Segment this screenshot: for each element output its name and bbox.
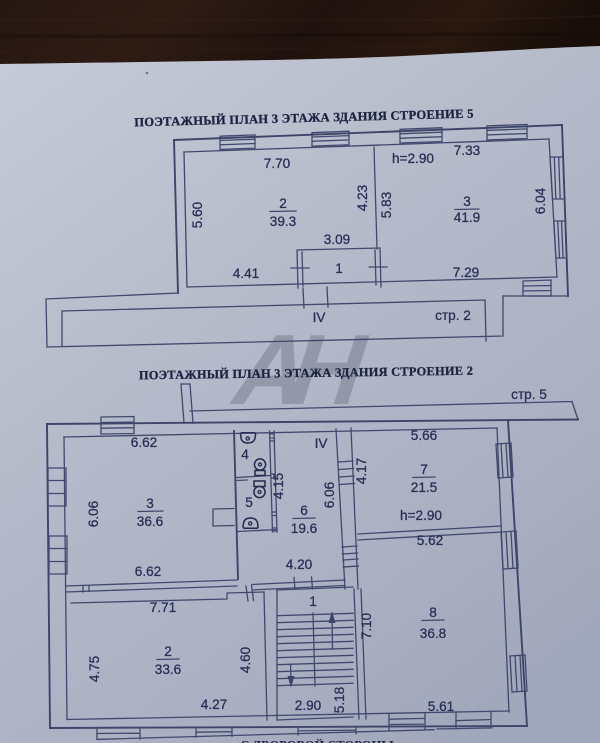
svg-text:1: 1 — [335, 261, 343, 276]
svg-text:2: 2 — [279, 196, 287, 211]
svg-text:7.29: 7.29 — [453, 265, 479, 280]
svg-text:IV: IV — [315, 436, 328, 451]
svg-text:1: 1 — [309, 594, 317, 609]
svg-text:36.8: 36.8 — [420, 626, 446, 641]
svg-text:4.27: 4.27 — [201, 697, 227, 712]
svg-text:4.60: 4.60 — [238, 646, 253, 673]
svg-text:5.60: 5.60 — [190, 201, 205, 228]
svg-text:5.18: 5.18 — [332, 687, 347, 713]
svg-text:2: 2 — [164, 644, 172, 659]
svg-text:IV: IV — [313, 310, 326, 325]
svg-text:6: 6 — [300, 503, 308, 518]
svg-text:6.06: 6.06 — [86, 501, 101, 527]
svg-text:4.23: 4.23 — [355, 185, 370, 211]
svg-text:h=2.90: h=2.90 — [392, 151, 434, 166]
svg-text:7.71: 7.71 — [150, 600, 176, 615]
svg-text:4.15: 4.15 — [271, 473, 286, 499]
svg-text:стр. 5: стр. 5 — [511, 387, 547, 402]
svg-text:6.04: 6.04 — [533, 187, 548, 214]
svg-text:33.6: 33.6 — [155, 662, 181, 677]
svg-text:7: 7 — [420, 462, 428, 477]
svg-text:стр. 2: стр. 2 — [435, 308, 471, 323]
svg-text:19.6: 19.6 — [291, 521, 317, 536]
svg-text:7.70: 7.70 — [264, 156, 291, 171]
svg-text:h=2.90: h=2.90 — [400, 508, 442, 523]
svg-text:3.09: 3.09 — [324, 232, 350, 247]
svg-text:6.06: 6.06 — [322, 482, 337, 508]
svg-text:8: 8 — [429, 605, 437, 620]
svg-text:21.5: 21.5 — [411, 480, 437, 495]
svg-text:7.33: 7.33 — [454, 143, 480, 158]
svg-text:4.20: 4.20 — [286, 557, 313, 572]
svg-text:2.90: 2.90 — [295, 698, 322, 713]
svg-text:4.75: 4.75 — [87, 656, 102, 682]
svg-text:5.83: 5.83 — [379, 192, 394, 218]
svg-text:7.10: 7.10 — [359, 612, 374, 639]
svg-text:3: 3 — [463, 194, 471, 209]
svg-text:6.62: 6.62 — [135, 564, 161, 579]
svg-text:41.9: 41.9 — [454, 210, 480, 225]
svg-text:4: 4 — [241, 447, 249, 462]
svg-text:39.3: 39.3 — [270, 214, 296, 229]
svg-text:С ДВОРОВОЙ СТОРОНЫ: С ДВОРОВОЙ СТОРОНЫ — [240, 739, 394, 743]
svg-text:5: 5 — [245, 495, 253, 510]
svg-text:5.66: 5.66 — [411, 428, 437, 443]
svg-text:5.61: 5.61 — [428, 699, 454, 714]
svg-text:5.62: 5.62 — [417, 533, 443, 548]
svg-text:4.17: 4.17 — [354, 458, 369, 484]
svg-text:36.6: 36.6 — [137, 514, 163, 529]
svg-text:6.62: 6.62 — [131, 435, 157, 450]
svg-text:3: 3 — [146, 496, 154, 511]
svg-text:4.41: 4.41 — [233, 266, 259, 281]
